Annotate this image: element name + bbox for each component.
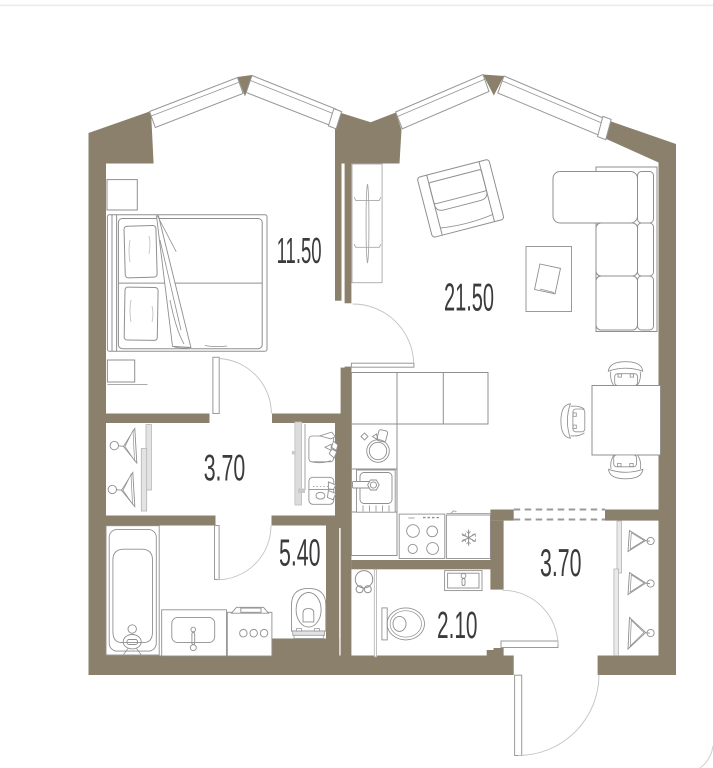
svg-text:3.70: 3.70	[204, 448, 246, 489]
svg-text:3.70: 3.70	[540, 542, 582, 585]
svg-text:21.50: 21.50	[444, 277, 494, 320]
svg-text:11.50: 11.50	[277, 230, 322, 271]
svg-text:5.40: 5.40	[279, 533, 321, 575]
svg-text:2.10: 2.10	[437, 605, 478, 647]
